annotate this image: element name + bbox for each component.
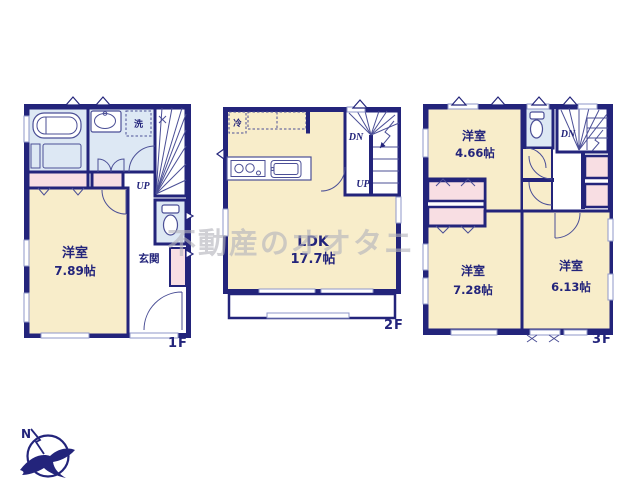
stairs-up-label-1f: UP (136, 181, 150, 192)
vent-icon (452, 97, 466, 105)
closet-3f-b (585, 184, 609, 207)
closet-3f-c (428, 181, 485, 201)
floor-label-3f: 3F (592, 332, 612, 347)
closet-3f-a (585, 156, 609, 178)
window (451, 330, 497, 335)
vent-icon (66, 97, 80, 105)
watermark: 不動産のオオタニ (98, 220, 484, 262)
window (564, 330, 587, 335)
fridge-label: 冷 (233, 118, 242, 129)
window (24, 240, 29, 266)
compass-north-label: N (21, 427, 31, 441)
kitchen-counter-icon (227, 157, 311, 180)
bedroom-3f-a-size: 4.66帖 (455, 146, 495, 160)
stairs-down-label-2f: DN (348, 132, 364, 143)
laundry-label: 洗 (134, 118, 143, 130)
balcony-mark-icon (527, 335, 559, 342)
vent-icon (532, 97, 546, 105)
window (423, 129, 428, 157)
floorplan-2f: DN UP 冷 LDK 17.7帖 (223, 107, 401, 322)
closet-1f-b (92, 172, 123, 188)
bedroom-3f-b-name: 洋室 (461, 263, 485, 278)
floor-label-1f: 1F (168, 336, 188, 351)
vent-icon (353, 100, 367, 108)
compass-icon: N (14, 424, 78, 480)
window (423, 278, 428, 304)
closet-1f-a (28, 172, 88, 188)
bedroom-3f-a-name: 洋室 (462, 128, 486, 143)
vent-icon (96, 97, 110, 105)
washbasin-icon (91, 111, 121, 132)
window (578, 104, 597, 109)
window (41, 333, 89, 338)
wall-stub-2f (306, 110, 310, 134)
floor-label-2f: 2F (384, 318, 404, 333)
toilet-icon-3f (530, 112, 544, 138)
floorplan-canvas: 洗 UP 玄関 (0, 0, 640, 480)
window (608, 274, 613, 300)
balcony-window (267, 313, 349, 318)
window (24, 116, 29, 142)
bedroom-3f-c-size: 6.13帖 (551, 280, 591, 294)
vent-icon (217, 149, 224, 159)
bedroom-3f-b-size: 7.28帖 (453, 283, 493, 297)
bedroom-3f-c-name: 洋室 (559, 258, 583, 273)
window (608, 219, 613, 241)
vent-icon (563, 97, 577, 105)
bedroom-1f-size: 7.89帖 (54, 263, 96, 278)
bedroom-1f-name: 洋室 (62, 245, 88, 261)
stairs-down-label-3f: DN (560, 129, 576, 140)
bathtub-icon (33, 113, 81, 138)
window (24, 293, 29, 322)
window (530, 330, 560, 335)
stairs-up-label-2f: UP (356, 179, 370, 190)
vent-icon (491, 97, 505, 105)
